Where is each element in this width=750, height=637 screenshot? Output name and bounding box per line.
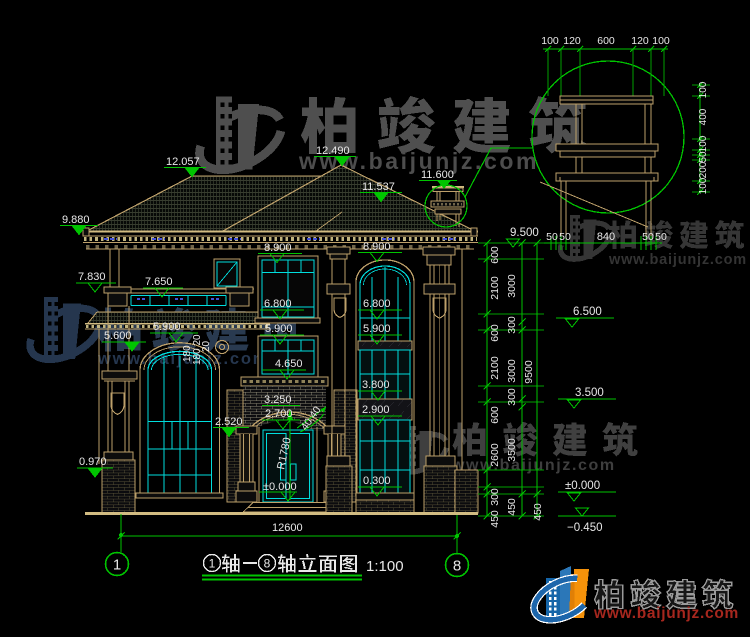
svg-text:2.700: 2.700 <box>265 408 293 420</box>
svg-text:1: 1 <box>113 557 121 574</box>
svg-text:0.970: 0.970 <box>79 456 107 468</box>
svg-text:5.600: 5.600 <box>104 330 132 342</box>
svg-text:6.500: 6.500 <box>573 306 602 318</box>
svg-text:7.830: 7.830 <box>78 271 106 283</box>
svg-text:600: 600 <box>489 246 501 264</box>
svg-text:2100: 2100 <box>489 276 501 300</box>
svg-text:50: 50 <box>642 231 654 243</box>
svg-text:1:100: 1:100 <box>366 558 404 575</box>
svg-text:www.baijunjz.com: www.baijunjz.com <box>593 605 739 622</box>
svg-text:5.900: 5.900 <box>265 323 293 335</box>
svg-text:5.900: 5.900 <box>363 323 391 335</box>
svg-text:450: 450 <box>489 510 501 528</box>
svg-text:9500: 9500 <box>523 360 535 384</box>
svg-text:2.520: 2.520 <box>215 416 243 428</box>
svg-text:50: 50 <box>655 231 667 243</box>
svg-text:9.500: 9.500 <box>510 227 539 239</box>
svg-text:100: 100 <box>541 35 559 47</box>
svg-text:600: 600 <box>489 324 501 342</box>
svg-text:1: 1 <box>209 557 216 571</box>
svg-text:300: 300 <box>506 388 518 406</box>
svg-text:4.650: 4.650 <box>275 358 303 370</box>
svg-text:3000: 3000 <box>506 359 518 383</box>
svg-text:50: 50 <box>559 231 571 243</box>
svg-text:6.800: 6.800 <box>264 298 292 310</box>
svg-text:400: 400 <box>698 108 709 125</box>
svg-text:50: 50 <box>546 231 558 243</box>
svg-text:8: 8 <box>264 557 271 571</box>
svg-text:100: 100 <box>698 177 709 194</box>
svg-text:450: 450 <box>506 498 518 516</box>
svg-text:300: 300 <box>489 488 501 506</box>
svg-text:120: 120 <box>563 35 581 47</box>
svg-text:3.800: 3.800 <box>362 379 390 391</box>
svg-text:±0.000: ±0.000 <box>263 481 297 493</box>
svg-text:11.600: 11.600 <box>421 169 454 181</box>
svg-text:300: 300 <box>506 316 518 334</box>
svg-text:−0.450: −0.450 <box>567 522 603 534</box>
svg-text:600: 600 <box>489 406 501 424</box>
svg-text:5.900: 5.900 <box>153 321 181 333</box>
svg-text:3500: 3500 <box>506 438 518 462</box>
svg-text:6.800: 6.800 <box>363 298 391 310</box>
svg-text:7.650: 7.650 <box>145 276 173 288</box>
svg-text:9.880: 9.880 <box>62 214 90 226</box>
svg-text:600: 600 <box>597 35 615 47</box>
svg-text:12.490: 12.490 <box>316 145 350 157</box>
svg-text:20: 20 <box>201 340 212 352</box>
svg-text:8: 8 <box>453 558 461 575</box>
svg-text:2.900: 2.900 <box>362 404 390 416</box>
svg-text:100: 100 <box>652 35 670 47</box>
svg-text:0.300: 0.300 <box>363 475 391 487</box>
svg-text:11.537: 11.537 <box>362 181 395 193</box>
svg-text:120: 120 <box>631 35 649 47</box>
svg-text:450: 450 <box>532 503 544 521</box>
svg-text:200: 200 <box>698 161 709 178</box>
svg-text:12.057: 12.057 <box>166 156 200 168</box>
svg-text:3.250: 3.250 <box>264 394 292 406</box>
svg-text:3000: 3000 <box>506 274 518 298</box>
svg-text:8.900: 8.900 <box>264 242 292 254</box>
svg-text:3.500: 3.500 <box>575 387 604 399</box>
svg-text:840: 840 <box>597 231 615 243</box>
svg-text:2100: 2100 <box>489 356 501 380</box>
svg-text:100: 100 <box>698 81 709 98</box>
svg-text:2600: 2600 <box>489 443 501 467</box>
svg-text:100: 100 <box>698 135 709 152</box>
svg-text:50: 50 <box>698 151 709 163</box>
svg-text:±0.000: ±0.000 <box>565 480 600 492</box>
svg-text:www.baijunjz.com: www.baijunjz.com <box>608 252 747 268</box>
svg-text:12600: 12600 <box>272 522 303 534</box>
svg-text:8.900: 8.900 <box>363 241 391 253</box>
